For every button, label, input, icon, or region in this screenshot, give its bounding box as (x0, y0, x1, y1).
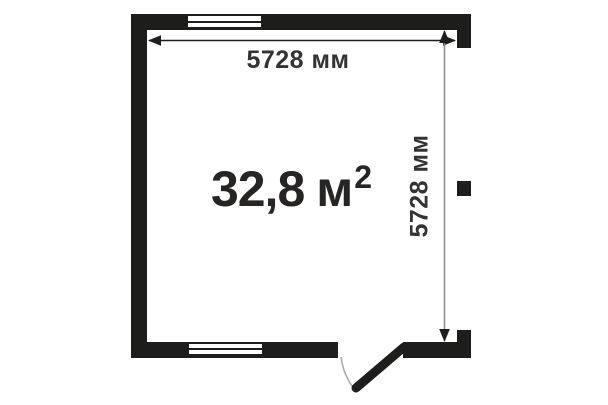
horizontal-dimension-line (148, 35, 456, 46)
room-area-label: 32,8м2 (131, 160, 451, 217)
floor-plan-canvas: 5728 мм 5728 мм 32,8м2 (0, 0, 608, 405)
width-dimension-label: 5728 мм (148, 46, 448, 75)
area-value: 32,8 (211, 161, 304, 217)
area-exponent: 2 (354, 159, 371, 195)
arrow-down-icon (439, 329, 450, 342)
arrow-up-icon (439, 30, 450, 43)
door (341, 347, 404, 388)
door-leaf (356, 347, 404, 388)
door-swing-arc (341, 357, 352, 386)
area-unit: м (316, 161, 352, 217)
arrow-left-icon (148, 35, 161, 46)
